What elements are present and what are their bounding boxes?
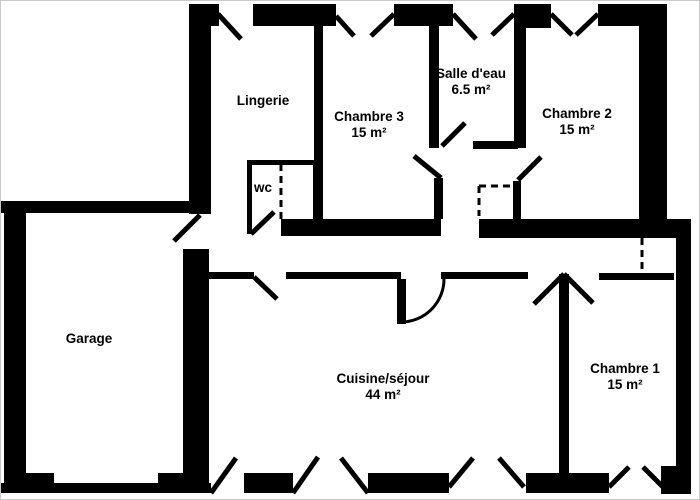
- wall: [479, 219, 677, 238]
- wall: [158, 473, 209, 493]
- door-window-leaf: [293, 457, 318, 493]
- door-window-leaf: [551, 14, 572, 35]
- door-window-leaf: [442, 123, 465, 146]
- floor-plan: LingerieChambre 315 m²Salle d'eau6.5 m²C…: [0, 0, 700, 500]
- wall: [183, 249, 209, 474]
- wall: [4, 473, 54, 493]
- door-window-leaf: [211, 458, 236, 493]
- door-window-leaf: [414, 156, 441, 178]
- door-window-leaf: [449, 458, 473, 487]
- door-window-leaf: [453, 14, 476, 39]
- door-window-leaf: [492, 14, 514, 35]
- room-name: wc: [254, 180, 272, 196]
- door-window-leaf: [609, 467, 629, 487]
- wall: [559, 274, 569, 473]
- wall: [286, 272, 401, 279]
- door-leaf: [397, 279, 406, 324]
- wall: [441, 272, 528, 279]
- wall: [314, 26, 323, 161]
- door-window-leaf: [499, 458, 524, 487]
- wall: [639, 4, 667, 226]
- wall: [313, 161, 323, 219]
- wall: [4, 201, 26, 493]
- wall: [253, 4, 336, 26]
- door-swing-arc: [401, 279, 444, 322]
- room-label: Lingerie: [237, 93, 290, 109]
- room-name: Cuisine/séjour: [336, 371, 429, 387]
- room-name: Chambre 2: [542, 106, 612, 122]
- wall: [676, 226, 691, 478]
- room-name: Chambre 1: [590, 361, 660, 377]
- door-window-leaf: [336, 16, 354, 36]
- room-label: wc: [254, 180, 272, 196]
- wall: [281, 219, 441, 236]
- room-name: Lingerie: [237, 93, 290, 109]
- wall: [473, 141, 518, 149]
- wall: [247, 160, 252, 234]
- door-window-leaf: [643, 467, 664, 488]
- room-label: Chambre 215 m²: [542, 106, 612, 138]
- door-window-leaf: [174, 215, 200, 241]
- room-name: Chambre 3: [334, 109, 404, 125]
- room-area: 15 m²: [590, 377, 660, 393]
- wall: [664, 219, 691, 227]
- door-window-leaf: [251, 212, 274, 234]
- wall: [209, 272, 254, 279]
- room-area: 15 m²: [542, 122, 612, 138]
- wall: [434, 178, 443, 219]
- room-name: Salle d'eau: [436, 66, 506, 82]
- wall: [1, 201, 189, 213]
- floor-plan-drawing: [1, 1, 700, 500]
- wall: [368, 473, 449, 493]
- room-label: Chambre 115 m²: [590, 361, 660, 393]
- door-window-leaf: [341, 458, 368, 493]
- room-label: Garage: [66, 331, 113, 347]
- wall: [514, 4, 551, 28]
- door-window-leaf: [576, 14, 598, 35]
- room-label: Chambre 315 m²: [334, 109, 404, 141]
- room-area: 6.5 m²: [436, 82, 506, 98]
- room-name: Garage: [66, 331, 113, 347]
- door-window-leaf: [254, 277, 277, 299]
- door-window-leaf: [371, 14, 394, 36]
- door-window-leaf: [218, 14, 241, 39]
- room-label: Cuisine/séjour44 m²: [336, 371, 429, 403]
- wall: [513, 181, 521, 219]
- wall: [599, 273, 674, 280]
- room-label: Salle d'eau6.5 m²: [436, 66, 506, 98]
- wall: [526, 473, 609, 493]
- wall: [244, 473, 293, 493]
- room-area: 15 m²: [334, 125, 404, 141]
- wall: [189, 4, 211, 214]
- wall: [394, 4, 453, 26]
- room-area: 44 m²: [336, 387, 429, 403]
- wall: [514, 26, 526, 148]
- door-window-leaf: [518, 157, 541, 180]
